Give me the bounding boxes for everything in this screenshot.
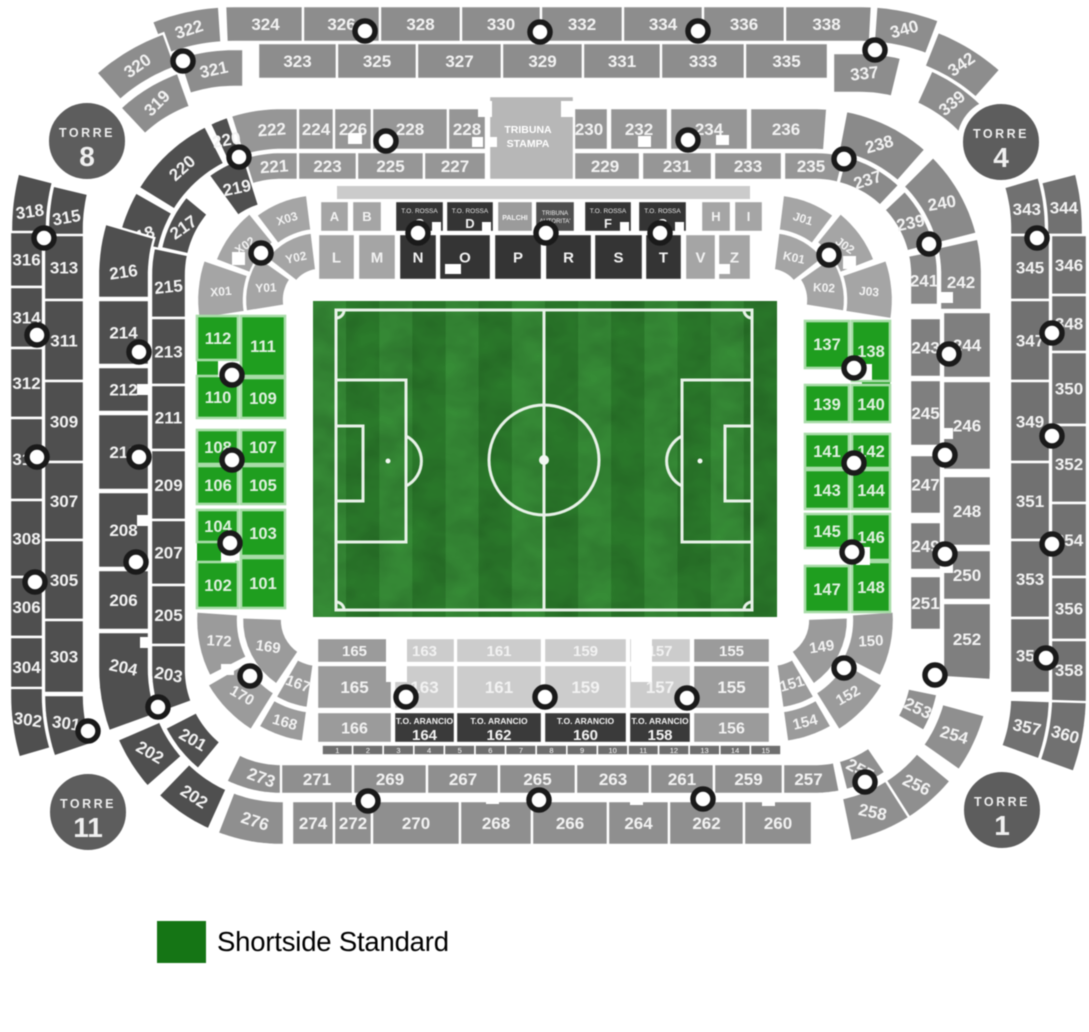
svg-text:T.O. ARANCIO: T.O. ARANCIO: [557, 716, 615, 726]
svg-text:164: 164: [412, 727, 438, 744]
svg-text:T.O. ROSSA: T.O. ROSSA: [452, 208, 489, 215]
svg-text:213: 213: [154, 343, 182, 362]
svg-text:8: 8: [79, 141, 95, 172]
svg-text:250: 250: [953, 566, 981, 585]
svg-text:TORRE: TORRE: [59, 126, 115, 140]
svg-text:358: 358: [1055, 661, 1083, 680]
svg-text:110: 110: [205, 389, 232, 407]
svg-text:P: P: [513, 249, 523, 266]
svg-text:144: 144: [857, 482, 885, 500]
svg-text:148: 148: [857, 579, 885, 597]
svg-text:PALCHI: PALCHI: [502, 215, 528, 222]
svg-text:304: 304: [12, 658, 41, 677]
svg-text:332: 332: [568, 15, 596, 34]
svg-text:10: 10: [609, 746, 617, 755]
svg-text:227: 227: [441, 157, 469, 176]
svg-text:5: 5: [458, 746, 462, 755]
svg-text:4: 4: [427, 746, 431, 755]
svg-text:1: 1: [335, 746, 339, 755]
svg-text:H: H: [711, 209, 720, 224]
svg-text:274: 274: [299, 814, 328, 833]
svg-text:302: 302: [12, 709, 43, 732]
svg-text:V: V: [695, 249, 705, 266]
svg-text:4: 4: [993, 142, 1009, 173]
svg-text:T.O. ARANCIO: T.O. ARANCIO: [396, 716, 454, 726]
svg-text:O: O: [459, 249, 471, 266]
svg-text:TORRE: TORRE: [974, 795, 1030, 809]
svg-text:7: 7: [519, 746, 523, 755]
svg-text:12: 12: [670, 746, 678, 755]
svg-text:F: F: [604, 216, 612, 231]
svg-text:150: 150: [858, 632, 884, 650]
svg-text:T.O. ARANCIO: T.O. ARANCIO: [470, 716, 528, 726]
svg-text:6: 6: [488, 746, 492, 755]
svg-text:M: M: [371, 249, 384, 266]
svg-text:11: 11: [73, 812, 103, 843]
svg-text:109: 109: [249, 390, 277, 408]
svg-text:D: D: [465, 216, 474, 231]
svg-text:331: 331: [608, 52, 636, 71]
svg-text:166: 166: [341, 720, 368, 737]
svg-text:106: 106: [204, 477, 232, 495]
svg-text:211: 211: [155, 409, 182, 428]
svg-text:15: 15: [762, 746, 770, 755]
svg-text:222: 222: [257, 119, 287, 140]
svg-text:165: 165: [342, 643, 367, 660]
svg-text:8: 8: [549, 746, 553, 755]
svg-text:137: 137: [813, 336, 841, 354]
svg-text:161: 161: [485, 678, 513, 697]
svg-text:353: 353: [1016, 570, 1044, 589]
svg-text:TRIBUNA: TRIBUNA: [542, 211, 568, 217]
svg-text:B: B: [362, 209, 371, 224]
svg-text:TORRE: TORRE: [973, 127, 1029, 141]
svg-text:245: 245: [911, 404, 939, 423]
svg-text:306: 306: [12, 598, 40, 617]
svg-text:T.O. ARANCIO: T.O. ARANCIO: [631, 716, 689, 726]
svg-text:333: 333: [689, 52, 717, 71]
svg-text:346: 346: [1055, 256, 1083, 275]
svg-text:209: 209: [154, 476, 182, 495]
svg-text:263: 263: [599, 770, 627, 789]
svg-text:235: 235: [797, 157, 825, 176]
svg-text:228: 228: [453, 120, 481, 139]
svg-text:265: 265: [523, 770, 551, 789]
svg-text:3: 3: [396, 746, 400, 755]
svg-text:312: 312: [12, 374, 40, 393]
svg-text:231: 231: [663, 157, 691, 176]
svg-text:11: 11: [639, 746, 647, 755]
svg-text:215: 215: [153, 276, 183, 298]
svg-text:140: 140: [857, 396, 885, 414]
svg-text:R: R: [563, 249, 574, 266]
svg-text:261: 261: [668, 770, 696, 789]
svg-text:318: 318: [15, 201, 46, 224]
svg-text:349: 349: [1016, 413, 1044, 432]
svg-text:351: 351: [1016, 492, 1044, 511]
svg-text:229: 229: [591, 157, 619, 176]
svg-text:207: 207: [154, 544, 182, 563]
svg-text:303: 303: [50, 648, 78, 667]
svg-text:335: 335: [772, 52, 800, 71]
svg-text:325: 325: [363, 52, 391, 71]
svg-text:Shortside Standard: Shortside Standard: [217, 926, 449, 957]
svg-text:13: 13: [700, 746, 708, 755]
svg-text:233: 233: [734, 157, 762, 176]
svg-text:330: 330: [487, 15, 515, 34]
svg-text:328: 328: [406, 15, 434, 34]
svg-text:K02: K02: [813, 280, 836, 295]
svg-text:329: 329: [528, 52, 556, 71]
svg-text:307: 307: [50, 492, 78, 511]
svg-text:257: 257: [794, 770, 822, 789]
svg-text:343: 343: [1013, 200, 1041, 219]
svg-text:147: 147: [813, 581, 841, 599]
svg-text:141: 141: [813, 443, 841, 461]
svg-text:356: 356: [1055, 600, 1083, 619]
svg-text:155: 155: [719, 643, 744, 660]
svg-text:252: 252: [953, 630, 981, 649]
svg-text:149: 149: [808, 637, 835, 657]
svg-text:270: 270: [402, 814, 430, 833]
svg-text:158: 158: [647, 727, 672, 744]
svg-text:161: 161: [486, 643, 511, 660]
svg-text:T.O. ROSSA: T.O. ROSSA: [590, 208, 627, 215]
svg-text:102: 102: [204, 577, 232, 595]
svg-text:324: 324: [251, 15, 280, 34]
svg-text:216: 216: [108, 261, 139, 284]
svg-text:224: 224: [302, 120, 331, 139]
svg-text:169: 169: [255, 637, 282, 657]
svg-text:230: 230: [575, 120, 603, 139]
svg-text:J03: J03: [858, 284, 879, 300]
svg-text:259: 259: [734, 770, 762, 789]
svg-text:Y01: Y01: [255, 280, 277, 295]
svg-text:163: 163: [412, 643, 437, 660]
svg-text:268: 268: [482, 814, 510, 833]
svg-text:STAMPA: STAMPA: [507, 138, 550, 150]
svg-text:337: 337: [849, 63, 879, 85]
svg-text:327: 327: [445, 52, 473, 71]
svg-text:311: 311: [50, 332, 77, 351]
svg-text:266: 266: [556, 814, 584, 833]
svg-text:251: 251: [911, 594, 939, 613]
svg-text:139: 139: [813, 396, 841, 414]
svg-text:326: 326: [327, 15, 355, 34]
svg-text:S: S: [613, 249, 623, 266]
svg-text:221: 221: [259, 156, 289, 177]
svg-text:309: 309: [50, 413, 78, 432]
svg-text:345: 345: [1016, 259, 1044, 278]
svg-text:205: 205: [154, 606, 182, 625]
svg-text:352: 352: [1055, 455, 1083, 474]
svg-text:305: 305: [50, 571, 78, 590]
svg-text:350: 350: [1055, 380, 1083, 399]
svg-text:111: 111: [250, 338, 276, 356]
svg-text:334: 334: [649, 15, 678, 34]
svg-text:242: 242: [947, 273, 975, 292]
svg-text:TORRE: TORRE: [60, 797, 116, 811]
svg-text:223: 223: [313, 157, 341, 176]
svg-text:101: 101: [249, 575, 277, 593]
svg-text:241: 241: [910, 271, 938, 290]
svg-text:T: T: [659, 249, 668, 266]
svg-text:313: 313: [50, 259, 78, 278]
svg-text:X01: X01: [210, 284, 233, 300]
svg-text:9: 9: [580, 746, 584, 755]
svg-text:344: 344: [1050, 199, 1079, 218]
svg-text:159: 159: [573, 643, 598, 660]
svg-text:264: 264: [624, 814, 653, 833]
svg-text:267: 267: [449, 770, 477, 789]
svg-text:236: 236: [772, 120, 800, 139]
svg-text:T.O. ROSSA: T.O. ROSSA: [644, 208, 681, 215]
svg-text:262: 262: [692, 814, 720, 833]
svg-text:172: 172: [206, 632, 232, 650]
svg-text:214: 214: [109, 324, 138, 343]
svg-text:162: 162: [486, 727, 511, 744]
svg-text:308: 308: [12, 530, 40, 549]
svg-text:243: 243: [911, 339, 939, 358]
svg-text:145: 145: [813, 523, 841, 541]
svg-text:105: 105: [249, 477, 277, 495]
svg-text:N: N: [413, 249, 424, 266]
svg-text:T.O. ROSSA: T.O. ROSSA: [401, 208, 438, 215]
svg-text:I: I: [747, 209, 751, 224]
svg-text:165: 165: [340, 678, 368, 697]
svg-text:260: 260: [764, 814, 792, 833]
svg-text:156: 156: [718, 720, 745, 737]
svg-text:Z: Z: [730, 249, 739, 266]
svg-text:14: 14: [731, 746, 739, 755]
svg-text:A: A: [330, 209, 340, 224]
svg-text:316: 316: [12, 251, 40, 270]
svg-text:L: L: [332, 249, 341, 266]
svg-text:248: 248: [953, 502, 981, 521]
svg-text:271: 271: [303, 770, 331, 789]
svg-text:206: 206: [109, 591, 137, 610]
svg-text:155: 155: [717, 678, 745, 697]
svg-text:107: 107: [249, 439, 277, 457]
svg-text:225: 225: [376, 157, 404, 176]
svg-text:336: 336: [730, 15, 758, 34]
svg-text:246: 246: [953, 417, 981, 436]
svg-text:208: 208: [109, 521, 137, 540]
svg-text:159: 159: [571, 678, 599, 697]
svg-text:247: 247: [911, 476, 939, 495]
svg-text:1: 1: [994, 810, 1010, 841]
svg-text:2: 2: [366, 746, 370, 755]
svg-text:TRIBUNA: TRIBUNA: [504, 124, 552, 136]
svg-text:272: 272: [339, 814, 367, 833]
svg-text:269: 269: [376, 770, 404, 789]
svg-text:323: 323: [283, 52, 311, 71]
svg-text:228: 228: [396, 120, 424, 139]
svg-text:338: 338: [812, 15, 840, 34]
svg-text:143: 143: [813, 482, 841, 500]
svg-text:212: 212: [109, 381, 137, 400]
svg-text:103: 103: [249, 525, 277, 543]
svg-text:160: 160: [573, 727, 598, 744]
svg-text:112: 112: [205, 330, 232, 348]
